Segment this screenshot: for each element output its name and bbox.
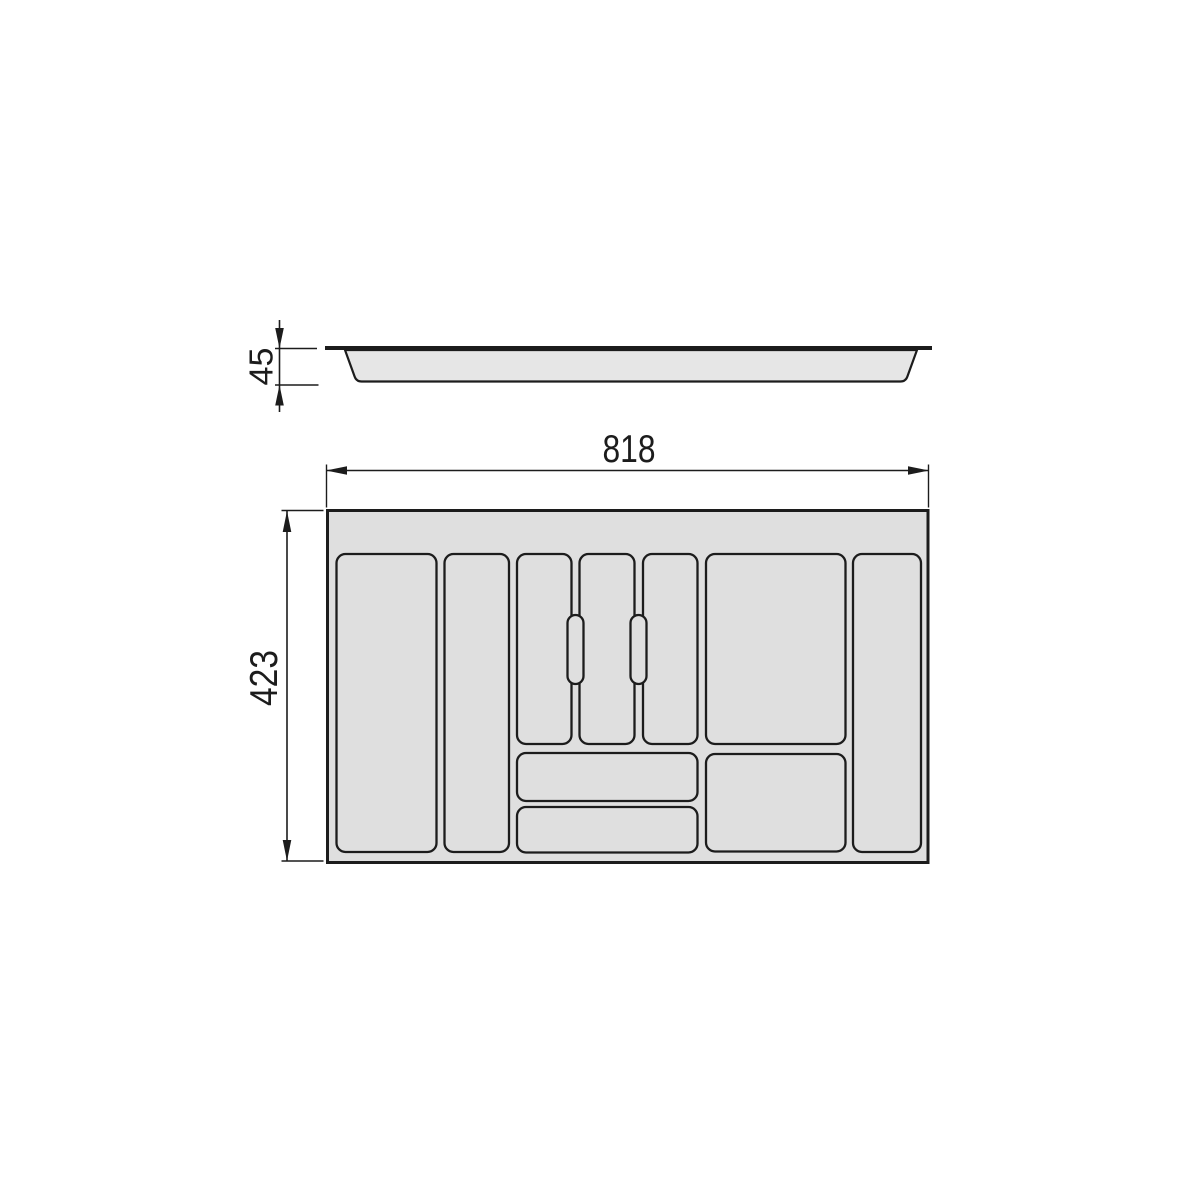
depth-arrow-top bbox=[283, 511, 292, 532]
knife-slot-right bbox=[631, 615, 647, 684]
side-profile-view bbox=[325, 346, 932, 382]
height-arrow-top bbox=[275, 328, 284, 349]
depth-dimension: 423 bbox=[243, 511, 324, 862]
compartment-horizontal-lower bbox=[517, 807, 698, 853]
height-dimension: 45 bbox=[243, 320, 319, 412]
depth-dimension-label: 423 bbox=[243, 650, 286, 706]
compartment-middle-2 bbox=[580, 554, 635, 744]
height-dimension-label: 45 bbox=[243, 348, 280, 386]
width-arrow-right bbox=[908, 466, 929, 474]
compartment-right-tall bbox=[853, 554, 921, 852]
tray-body-profile bbox=[345, 350, 917, 382]
width-dimension: 818 bbox=[326, 428, 929, 508]
knife-slot-left bbox=[568, 615, 584, 684]
compartment-middle-1 bbox=[517, 554, 572, 744]
width-dimension-label: 818 bbox=[603, 428, 656, 471]
compartment-left-tall bbox=[337, 554, 437, 852]
compartment-middle-3 bbox=[643, 554, 698, 744]
compartment-large-right bbox=[706, 554, 846, 744]
compartment-bottom-right bbox=[706, 754, 846, 852]
compartment-second-tall bbox=[445, 554, 510, 852]
drawing-canvas: 45 818 423 bbox=[0, 0, 1181, 1181]
cutlery-tray-technical-drawing: 45 818 423 bbox=[0, 0, 1181, 1181]
width-arrow-left bbox=[326, 466, 347, 474]
tray-top-view bbox=[328, 511, 929, 863]
depth-arrow-bottom bbox=[283, 840, 292, 861]
height-arrow-bottom bbox=[275, 385, 284, 406]
compartment-horizontal-upper bbox=[517, 753, 698, 801]
